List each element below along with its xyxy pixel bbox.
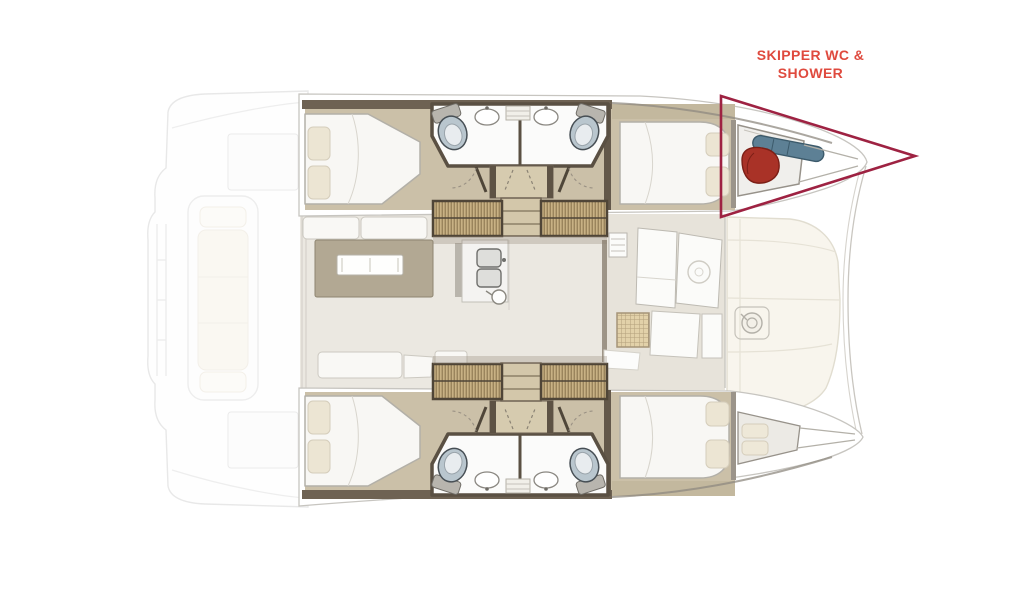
saloon-bench-cushion	[361, 217, 427, 239]
saloon-bench-cushion	[318, 352, 402, 378]
stairs	[501, 363, 541, 401]
bow-cushion	[742, 424, 768, 438]
cockpit-seat-aft-port	[228, 134, 298, 190]
bow-deck-edge	[848, 166, 866, 434]
skipper-wc-label: SKIPPER WC & SHOWER	[738, 46, 883, 82]
faucet-icon	[502, 258, 506, 262]
shelf	[506, 106, 530, 120]
nav-area	[602, 214, 725, 390]
forward-port-cabin-bed	[620, 122, 729, 204]
pillow	[706, 402, 729, 426]
pillow	[308, 166, 330, 199]
skipper-wc-label-line1: SKIPPER WC &	[738, 46, 883, 64]
starboard-bathrooms	[431, 434, 608, 495]
sink-icon	[534, 472, 558, 488]
pillow	[308, 127, 330, 160]
skipper-wc-label-line2: SHOWER	[738, 64, 883, 82]
saloon-bench-cushion	[404, 355, 433, 378]
galley	[455, 240, 509, 310]
saloon-bench-cushion	[303, 217, 359, 239]
port-bathrooms	[431, 103, 608, 166]
forward-starboard-cabin-bed	[620, 396, 729, 478]
stern-cockpit	[148, 91, 308, 507]
sink-icon	[475, 109, 499, 125]
bow-cushion	[742, 441, 768, 455]
sink-icon	[534, 109, 558, 125]
pillow	[308, 401, 330, 434]
pillow	[308, 440, 330, 473]
kettle-icon	[492, 290, 506, 304]
cockpit-sofa-cushion	[198, 230, 248, 370]
floor-grate	[617, 313, 649, 347]
catamaran-floorplan: SKIPPER WC & SHOWER	[0, 0, 1024, 600]
cabinet-panel	[636, 228, 677, 308]
hatch-panel	[676, 233, 722, 308]
cockpit-seat-aft-starboard	[228, 412, 298, 468]
cabinet-panel	[604, 350, 640, 370]
nav-instrument-panel	[609, 233, 627, 257]
pillow	[706, 167, 729, 196]
galley-sink	[477, 249, 501, 267]
boat-drawing	[0, 0, 1024, 600]
shelf	[506, 479, 530, 493]
sink-icon	[475, 472, 499, 488]
galley-sink	[477, 269, 501, 287]
cabinet-panel	[702, 314, 722, 358]
pillow	[706, 440, 729, 468]
stairs	[501, 198, 541, 236]
pillow	[706, 133, 729, 156]
cabinet-panel	[650, 311, 700, 358]
